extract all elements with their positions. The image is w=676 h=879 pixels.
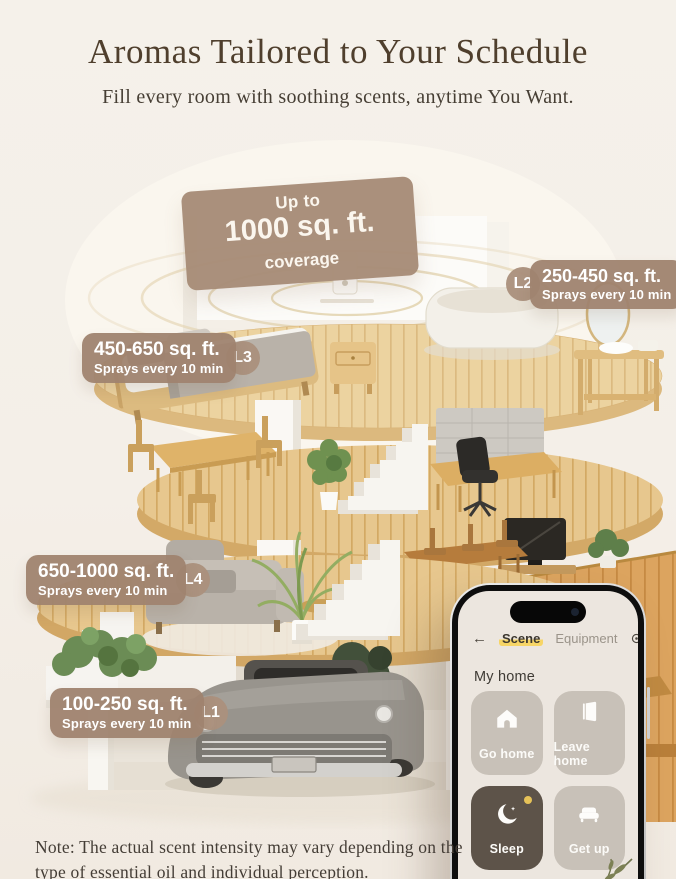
tab-scene[interactable]: Scene: [499, 631, 543, 646]
settings-icon[interactable]: [629, 631, 638, 646]
phone-mockup: ← Scene Equipment My home: [450, 583, 646, 879]
back-icon[interactable]: ←: [472, 631, 487, 646]
active-status-dot: [524, 796, 532, 804]
app-header: ← Scene Equipment: [458, 631, 638, 646]
level-frequency: Sprays every 10 min: [38, 583, 174, 598]
level-label-l1: 100-250 sq. ft. Sprays every 10 min L1: [50, 688, 228, 738]
phone-screen: ← Scene Equipment My home: [458, 591, 638, 879]
scene-label: Go home: [479, 747, 535, 761]
door-icon: [576, 699, 602, 730]
level-area: 100-250 sq. ft.: [62, 694, 192, 716]
moon-icon: [494, 801, 520, 832]
level-frequency: Sprays every 10 min: [62, 716, 192, 731]
front-camera: [571, 608, 579, 616]
marketing-image: Aromas Tailored to Your Schedule Fill ev…: [0, 0, 676, 879]
tab-equipment[interactable]: Equipment: [555, 631, 617, 646]
level-label-l2: L2 250-450 sq. ft. Sprays every 10 min: [506, 260, 676, 309]
scene-label: Sleep: [490, 842, 524, 856]
scene-tiles: Go home Leave home: [471, 691, 625, 870]
note-text: Note: The actual scent intensity may var…: [35, 835, 467, 879]
page-subtitle: Fill every room with soothing scents, an…: [0, 86, 676, 109]
coverage-suffix: coverage: [264, 249, 340, 273]
home-icon: [494, 706, 520, 737]
level-frequency: Sprays every 10 min: [542, 287, 672, 302]
page-title: Aromas Tailored to Your Schedule: [0, 0, 676, 72]
coverage-badge: Up to 1000 sq. ft. coverage: [181, 176, 419, 291]
section-title: My home: [474, 669, 535, 685]
scene-label: Leave home: [554, 740, 626, 768]
scene-leave-home[interactable]: Leave home: [554, 691, 626, 775]
level-area: 450-650 sq. ft.: [94, 339, 224, 361]
level-area: 250-450 sq. ft.: [542, 266, 672, 287]
leaf-decoration: [580, 853, 636, 879]
scene-sleep[interactable]: Sleep: [471, 786, 543, 870]
scene-go-home[interactable]: Go home: [471, 691, 543, 775]
bed-icon: [576, 801, 602, 832]
level-area: 650-1000 sq. ft.: [38, 561, 174, 583]
dynamic-island: [510, 601, 586, 623]
level-label-l4: 650-1000 sq. ft. Sprays every 10 min L4: [26, 555, 210, 605]
level-frequency: Sprays every 10 min: [94, 361, 224, 376]
phone-power-button: [647, 687, 650, 739]
level-label-l3: 450-650 sq. ft. Sprays every 10 min L3: [82, 333, 260, 383]
